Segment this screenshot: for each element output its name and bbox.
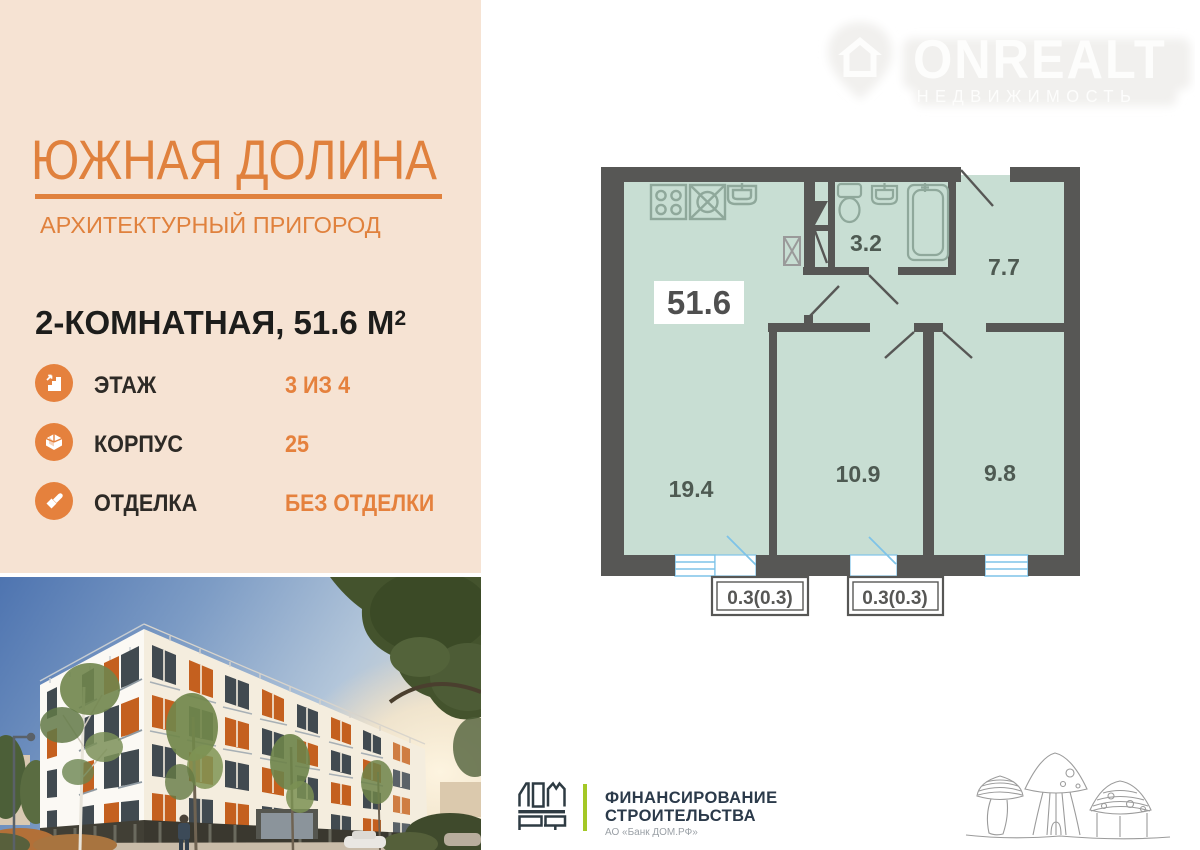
svg-text:0.3(0.3): 0.3(0.3) [862,588,927,609]
svg-text:0.3(0.3): 0.3(0.3) [727,588,792,609]
svg-text:9.8: 9.8 [984,460,1016,486]
svg-text:51.6: 51.6 [667,284,731,321]
svg-text:19.4: 19.4 [669,476,714,502]
svg-text:10.9: 10.9 [836,461,881,487]
svg-text:7.7: 7.7 [988,254,1020,280]
svg-text:СТРОИТЕЛЬСТВА: СТРОИТЕЛЬСТВА [605,807,756,825]
svg-text:3.2: 3.2 [850,230,882,256]
svg-text:АО «Банк ДОМ.РФ»: АО «Банк ДОМ.РФ» [605,827,698,838]
svg-text:ФИНАНСИРОВАНИЕ: ФИНАНСИРОВАНИЕ [605,789,777,807]
